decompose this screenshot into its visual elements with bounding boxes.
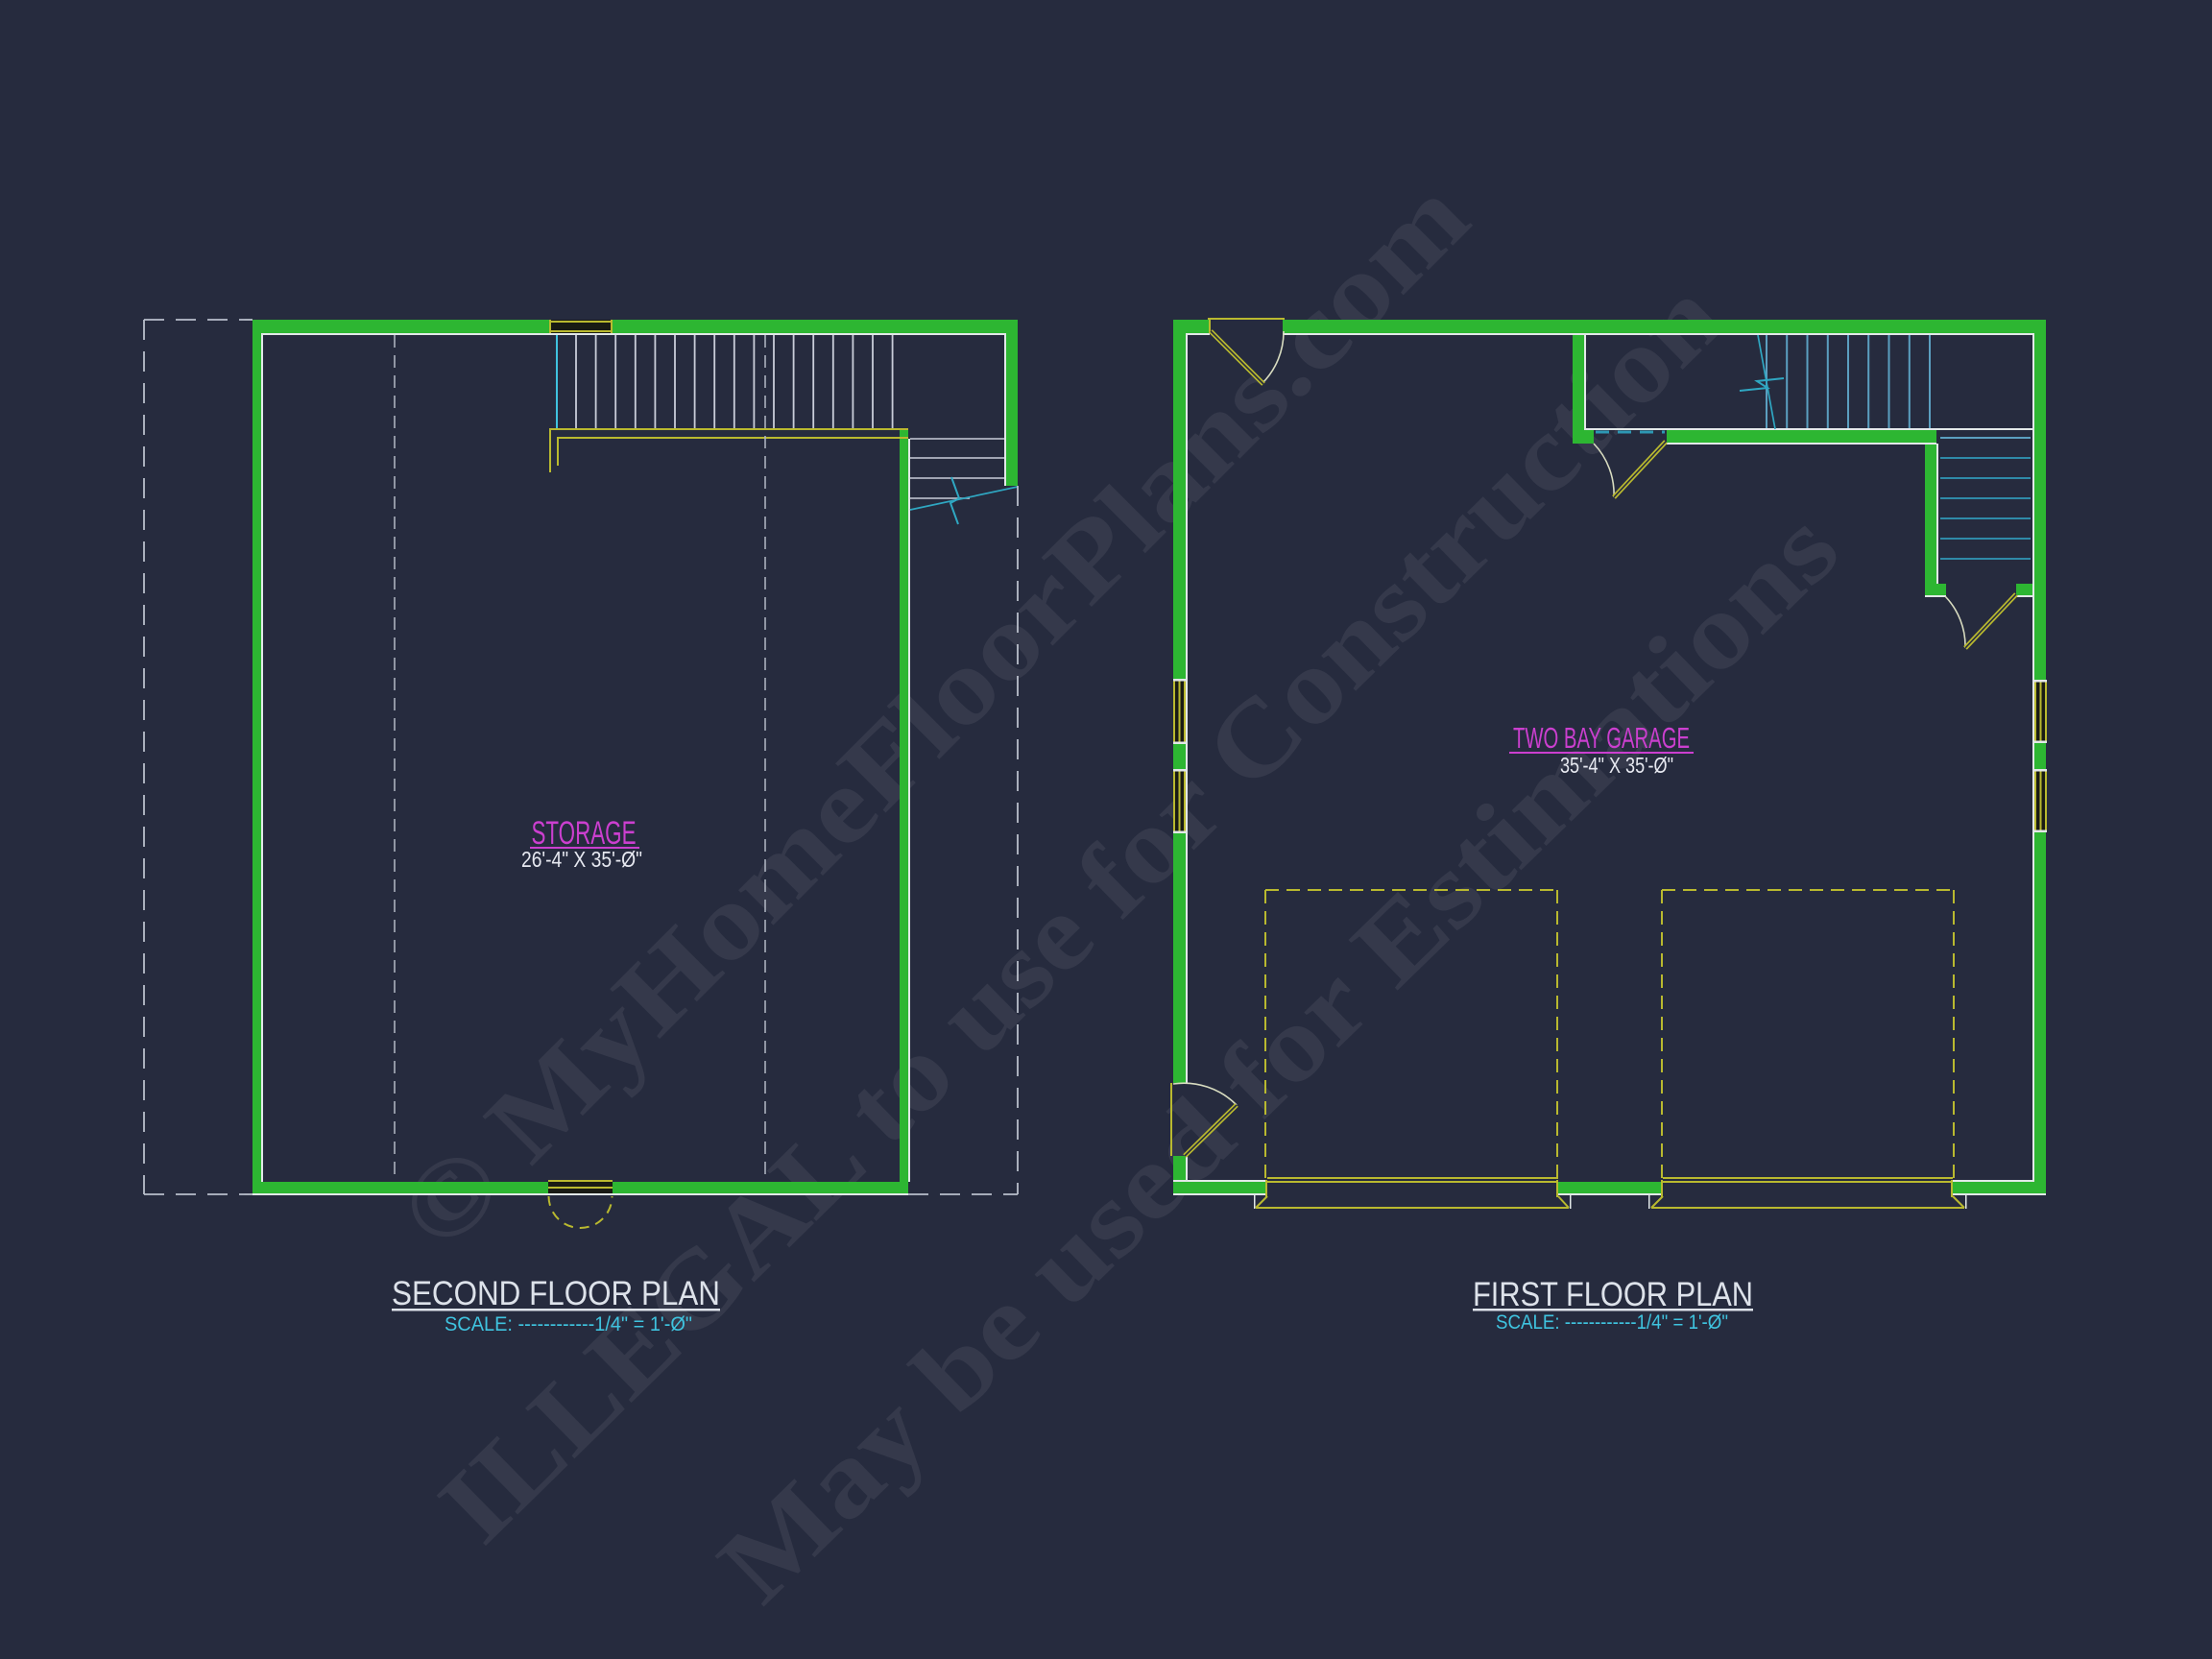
svg-text:ILLEGAL to use for Constructio: ILLEGAL to use for Construction [417, 257, 1745, 1566]
svg-text:SCALE: ------------1/4" = 1'-Ø: SCALE: ------------1/4" = 1'-Ø" [445, 1313, 692, 1335]
svg-text:FIRST FLOOR PLAN: FIRST FLOOR PLAN [1473, 1276, 1753, 1313]
svg-text:35'-4" X 35'-Ø": 35'-4" X 35'-Ø" [1560, 753, 1673, 778]
svg-text:26'-4" X 35'-Ø": 26'-4" X 35'-Ø" [521, 847, 642, 872]
svg-text:TWO BAY GARAGE: TWO BAY GARAGE [1513, 721, 1690, 755]
svg-text:SECOND FLOOR PLAN: SECOND FLOOR PLAN [392, 1275, 720, 1312]
svg-text:SCALE: ------------1/4" = 1'-Ø: SCALE: ------------1/4" = 1'-Ø" [1496, 1311, 1728, 1334]
